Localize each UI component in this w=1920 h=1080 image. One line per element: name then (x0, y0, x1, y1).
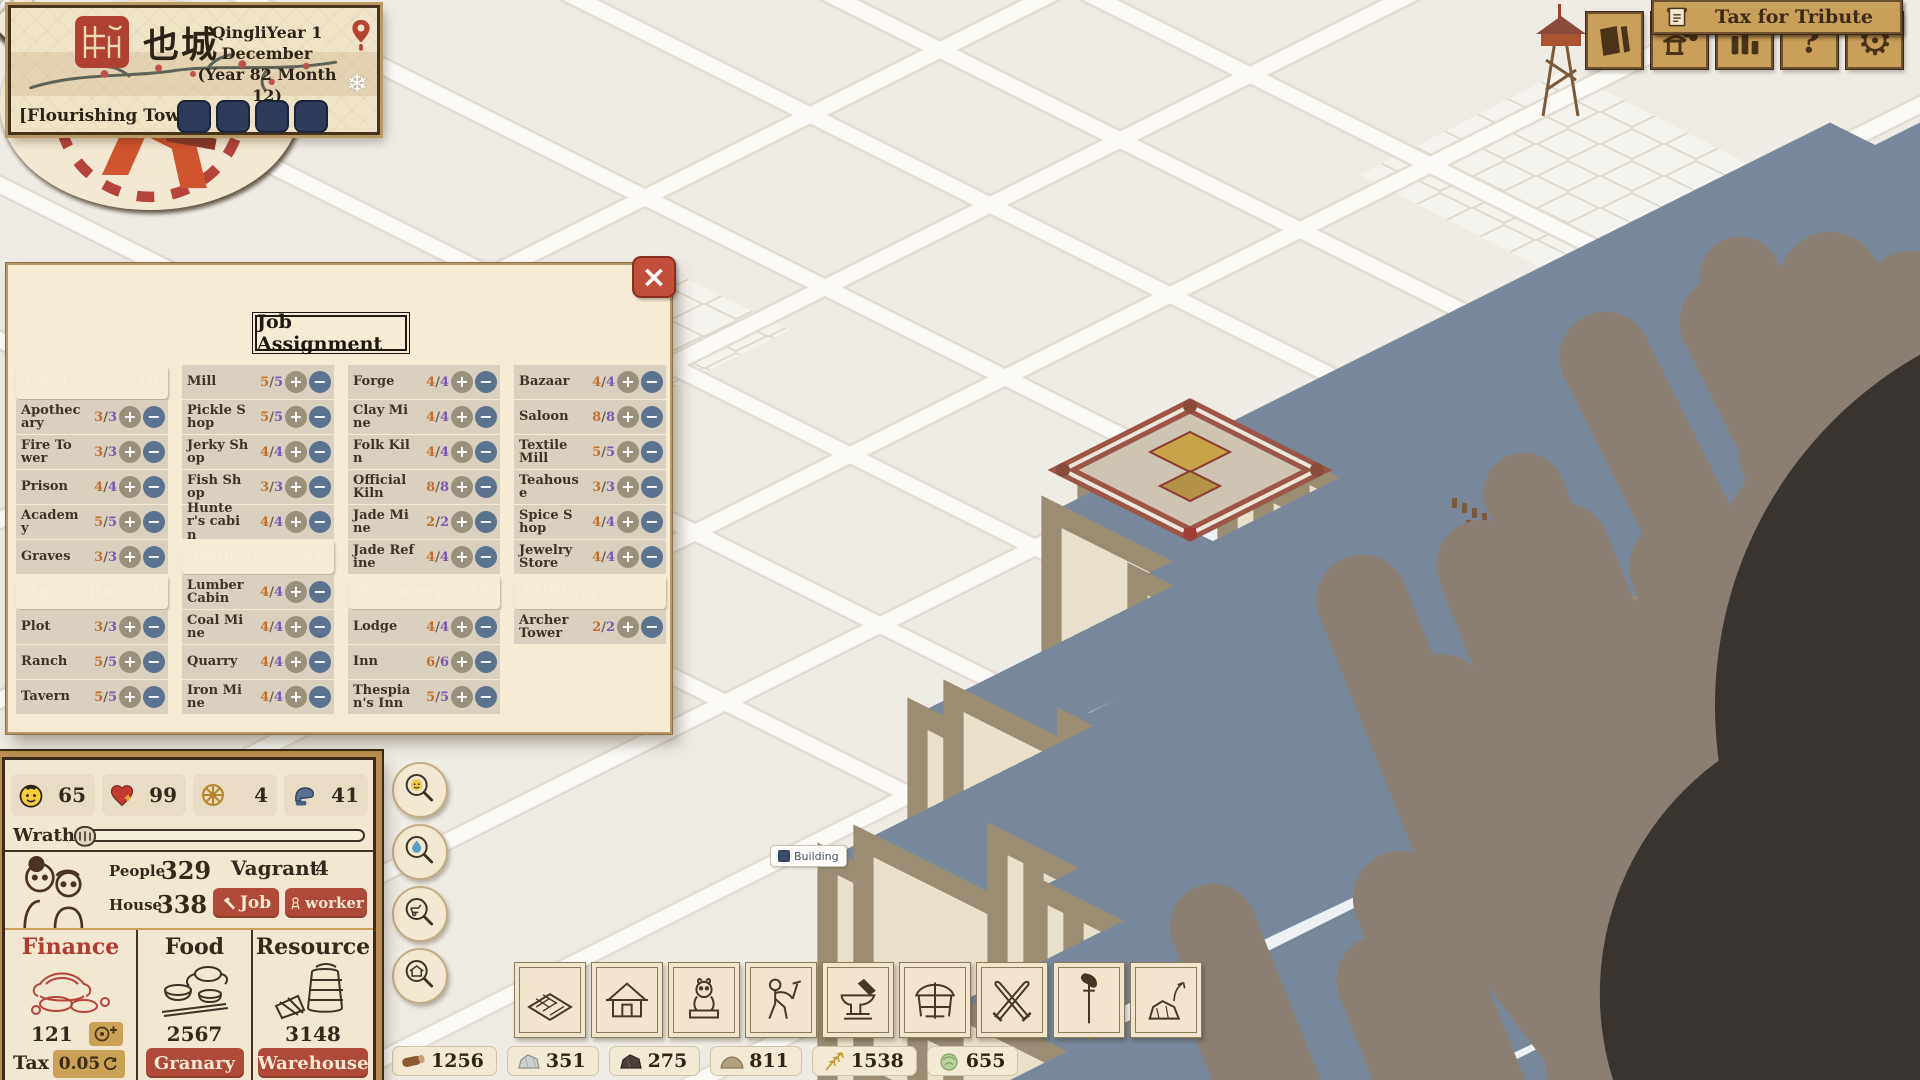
overlay-tool-button[interactable] (392, 824, 448, 880)
job-row: Iron Mine 4/4 + − (182, 680, 334, 714)
job-row: Pickle Shop 5/5 + − (182, 400, 334, 434)
resource-value: 1538 (851, 1050, 904, 1072)
remove-worker-button[interactable]: − (309, 511, 331, 533)
vagrant-label: Vagrant (231, 856, 319, 880)
speed-button[interactable] (294, 100, 328, 133)
job-name: Jerky Shop (187, 439, 248, 466)
resource-chip: 1538 (812, 1046, 917, 1076)
remove-worker-button[interactable]: − (641, 441, 663, 463)
remove-worker-button[interactable]: − (641, 546, 663, 568)
job-row: Thespian's Inn 5/5 + − (348, 680, 500, 714)
build-icon (599, 972, 655, 1028)
job-count: 6/6 (416, 655, 449, 670)
speed-controls (177, 100, 328, 133)
job-name: Saloon (519, 410, 580, 423)
town-info-panel: 也城 QingliYear 1 December (Year 82 Month … (8, 5, 380, 135)
remove-worker-button[interactable]: − (143, 406, 165, 428)
stat-chips: 65 99 4 41 (11, 774, 368, 816)
job-name: Lumber Cabin (187, 579, 248, 606)
remove-worker-button[interactable]: − (641, 406, 663, 428)
coin-add-button[interactable] (89, 1022, 123, 1046)
menu-button[interactable] (1586, 12, 1643, 69)
job-category-header: Agriculture59 (16, 575, 168, 609)
granary-button[interactable]: Granary (146, 1048, 244, 1078)
overlay-tools (392, 762, 448, 1004)
remove-worker-button[interactable]: − (641, 511, 663, 533)
job-category-header: Industry41 (182, 540, 334, 574)
overlay-tool-icon (400, 770, 440, 810)
job-name: Mill (187, 375, 248, 388)
job-name: Quarry (187, 655, 248, 668)
build-slot[interactable] (668, 962, 740, 1038)
job-count: 2/2 (582, 620, 615, 635)
job-count: 4/4 (582, 515, 615, 530)
resource-icon (719, 1051, 745, 1071)
job-name: Folk Kiln (353, 439, 414, 466)
remove-worker-button[interactable]: − (475, 686, 497, 708)
map-tooltip: Building (770, 845, 847, 867)
food-sketch (149, 962, 241, 1020)
add-worker-button[interactable]: + (451, 371, 473, 393)
add-worker-button[interactable]: + (119, 686, 141, 708)
job-count: 4/4 (416, 410, 449, 425)
job-name: Iron Mine (187, 684, 248, 711)
job-count: 4/4 (250, 515, 283, 530)
coin-plus-icon (93, 1024, 119, 1044)
job-name: Clay Mine (353, 404, 414, 431)
remove-worker-button[interactable]: − (475, 511, 497, 533)
overlay-tool-icon (400, 832, 440, 872)
remove-worker-button[interactable]: − (475, 476, 497, 498)
banner-button[interactable]: Tax for Tribute (1652, 0, 1902, 34)
resource-value: 811 (749, 1050, 789, 1072)
wrath-label: Wrath (13, 825, 75, 846)
job-column-3: Forge 4/4 + − Clay Mine 4/4 + − Folk Kil… (348, 365, 500, 714)
remove-worker-button[interactable]: − (475, 441, 497, 463)
resource-value: 3148 (285, 1022, 341, 1046)
job-row: Lumber Cabin 4/4 + − (182, 575, 334, 609)
job-row: Coal Mine 4/4 + − (182, 610, 334, 644)
category-label: Military (523, 582, 599, 602)
category-count: 41 (301, 547, 325, 567)
date-display: QingliYear 1 December (Year 82 Month 12) (181, 22, 353, 106)
job-count: 4/4 (250, 655, 283, 670)
stat-value: 41 (331, 783, 359, 807)
remove-worker-button[interactable]: − (309, 406, 331, 428)
add-worker-button[interactable]: + (617, 406, 639, 428)
resource-icon (936, 1051, 962, 1071)
vagrant-value: 4 (315, 856, 329, 880)
job-row: Mill 5/5 + − (182, 365, 334, 399)
build-icon (522, 972, 578, 1028)
build-icon (1061, 972, 1117, 1028)
build-slot[interactable] (1053, 962, 1125, 1038)
job-row: Apothecary 3/3 + − (16, 400, 168, 434)
job-name: Fish Shop (187, 474, 248, 501)
job-column-1: Civil10 Apothecary 3/3 + − Fire Tower 3/… (16, 365, 168, 714)
job-assignment-panel: × Job Assignment Civil10 Apothecary 3/3 … (6, 263, 672, 734)
job-name: Coal Mine (187, 614, 248, 641)
job-count: 4/4 (250, 585, 283, 600)
banner-label: Tax for Tribute (1698, 6, 1890, 28)
job-row: Lodge 4/4 + − (348, 610, 500, 644)
finance-title: Finance (5, 934, 136, 960)
remove-worker-button[interactable]: − (309, 476, 331, 498)
job-row: Jade Mine 2/2 + − (348, 505, 500, 539)
job-count: 5/5 (84, 690, 117, 705)
population-section: People 329 House 338 Vagrant 4 Job worke… (5, 854, 373, 928)
job-row: Forge 4/4 + − (348, 365, 500, 399)
job-row: Spice Shop 4/4 + − (514, 505, 666, 539)
build-slot[interactable] (822, 962, 894, 1038)
banner-icon (1664, 4, 1690, 30)
add-worker-button[interactable]: + (617, 441, 639, 463)
category-count: 2 (645, 582, 657, 602)
job-count: 4/4 (84, 480, 117, 495)
add-worker-button[interactable]: + (617, 511, 639, 533)
add-worker-button[interactable]: + (119, 441, 141, 463)
stat-icon (108, 781, 136, 809)
add-worker-button[interactable]: + (119, 616, 141, 638)
stat-icon (17, 781, 45, 809)
add-worker-button[interactable]: + (285, 406, 307, 428)
job-count: 5/5 (84, 655, 117, 670)
job-name: Thespian's Inn (353, 684, 414, 711)
build-slot[interactable] (514, 962, 586, 1038)
map-pin-icon[interactable] (345, 18, 377, 54)
stat-chip[interactable]: 41 (284, 774, 368, 816)
hammer-icon (221, 895, 237, 911)
category-label: Economy (357, 582, 443, 602)
job-count: 5/5 (250, 410, 283, 425)
build-slot[interactable] (591, 962, 663, 1038)
remove-worker-button[interactable]: − (309, 441, 331, 463)
job-name: Bazaar (519, 375, 580, 388)
remove-worker-button[interactable]: − (475, 371, 497, 393)
category-label: Industry (191, 547, 272, 567)
resource-chip: 351 (507, 1046, 599, 1076)
job-count: 5/5 (416, 690, 449, 705)
job-row: Prison 4/4 + − (16, 470, 168, 504)
job-category-header: Military2 (514, 575, 666, 609)
house-label: House (109, 896, 162, 914)
add-worker-button[interactable]: + (451, 441, 473, 463)
add-worker-button[interactable]: + (617, 546, 639, 568)
job-row: Graves 3/3 + − (16, 540, 168, 574)
job-name: Forge (353, 375, 414, 388)
stat-icon (199, 781, 227, 809)
build-toolbar (514, 962, 1202, 1038)
job-row: Academy 5/5 + − (16, 505, 168, 539)
resource-title: Resource (253, 934, 373, 960)
resource-chip: 1256 (392, 1046, 497, 1076)
job-row: Fire Tower 3/3 + − (16, 435, 168, 469)
add-worker-button[interactable]: + (617, 476, 639, 498)
overlay-tool-button[interactable] (392, 762, 448, 818)
stat-value: 65 (58, 783, 86, 807)
add-worker-button[interactable]: + (285, 616, 307, 638)
overlay-tool-button[interactable] (392, 886, 448, 942)
tax-control[interactable]: 0.05 (53, 1050, 125, 1078)
job-name: Inn (353, 655, 414, 668)
job-row: Fish Shop 3/3 + − (182, 470, 334, 504)
house-value: 338 (157, 890, 207, 919)
people-value: 329 (161, 856, 211, 885)
speed-button[interactable] (216, 100, 250, 133)
job-count: 3/3 (84, 410, 117, 425)
remove-worker-button[interactable]: − (143, 511, 165, 533)
job-count: 4/4 (250, 445, 283, 460)
people-label: People (109, 862, 165, 880)
resource-value: 351 (546, 1050, 586, 1072)
remove-worker-button[interactable]: − (143, 546, 165, 568)
overlay-tool-button[interactable] (392, 948, 448, 1004)
build-slot[interactable] (1130, 962, 1202, 1038)
job-row: Official Kiln 8/8 + − (348, 470, 500, 504)
add-worker-button[interactable]: + (119, 406, 141, 428)
town-status: [Flourishing Town] (19, 106, 200, 126)
stat-icon (290, 781, 318, 809)
add-worker-button[interactable]: + (285, 651, 307, 673)
add-worker-button[interactable]: + (285, 511, 307, 533)
job-name: Spice Shop (519, 509, 580, 536)
job-row: Tavern 5/5 + − (16, 680, 168, 714)
panel-title: Job Assignment (255, 315, 407, 351)
job-count: 4/4 (250, 690, 283, 705)
add-worker-button[interactable]: + (451, 651, 473, 673)
finance-value: 121 (31, 1022, 73, 1046)
job-count: 4/4 (416, 375, 449, 390)
svg-text:❄: ❄ (347, 69, 368, 98)
job-name: Teahouse (519, 474, 580, 501)
remove-worker-button[interactable]: − (309, 371, 331, 393)
job-name: Textile Mill (519, 439, 580, 466)
add-worker-button[interactable]: + (451, 476, 473, 498)
resource-value: 275 (648, 1050, 688, 1072)
job-count: 5/5 (84, 515, 117, 530)
resource-sketch (267, 962, 359, 1020)
add-worker-button[interactable]: + (451, 511, 473, 533)
job-count: 8/8 (582, 410, 615, 425)
job-button[interactable]: Job (213, 888, 279, 918)
job-name: Pickle Shop (187, 404, 248, 431)
remove-worker-button[interactable]: − (641, 616, 663, 638)
job-row: Folk Kiln 4/4 + − (348, 435, 500, 469)
remove-worker-button[interactable]: − (309, 651, 331, 673)
add-worker-button[interactable]: + (451, 616, 473, 638)
stat-chip[interactable]: 65 (11, 774, 95, 816)
resource-chip: 275 (609, 1046, 701, 1076)
overlay-tool-icon (400, 956, 440, 996)
job-row: Archer Tower 2/2 + − (514, 610, 666, 644)
build-icon (830, 972, 886, 1028)
job-count: 3/3 (582, 480, 615, 495)
job-row: Jerky Shop 4/4 + − (182, 435, 334, 469)
add-worker-button[interactable]: + (119, 546, 141, 568)
job-name: Jade Mine (353, 509, 414, 536)
job-row: Jewelry Store 4/4 + − (514, 540, 666, 574)
job-name: Jade Refine (353, 544, 414, 571)
remove-worker-button[interactable]: − (143, 686, 165, 708)
add-worker-button[interactable]: + (451, 546, 473, 568)
resource-chip: 811 (710, 1046, 802, 1076)
remove-worker-button[interactable]: − (475, 546, 497, 568)
remove-worker-button[interactable]: − (641, 371, 663, 393)
job-name: Archer Tower (519, 614, 580, 641)
resource-icon (821, 1051, 847, 1071)
resource-bar: 1256 351 275 811 1538 655 (392, 1046, 1018, 1076)
remove-worker-button[interactable]: − (143, 616, 165, 638)
job-count: 3/3 (84, 445, 117, 460)
job-count: 4/4 (250, 620, 283, 635)
remove-worker-button[interactable]: − (309, 686, 331, 708)
job-count: 3/3 (84, 620, 117, 635)
job-count: 5/5 (582, 445, 615, 460)
job-name: Lodge (353, 620, 414, 633)
job-count: 4/4 (416, 550, 449, 565)
add-worker-button[interactable]: + (617, 371, 639, 393)
remove-worker-button[interactable]: − (309, 581, 331, 603)
job-count: 4/4 (582, 550, 615, 565)
remove-worker-button[interactable]: − (475, 651, 497, 673)
build-slot[interactable] (745, 962, 817, 1038)
overlay-tool-icon (400, 894, 440, 934)
job-row: Textile Mill 5/5 + − (514, 435, 666, 469)
remove-worker-button[interactable]: − (143, 476, 165, 498)
resource-chip: 655 (927, 1046, 1019, 1076)
snowflake-icon: ❄ (341, 68, 373, 98)
job-name: Jewelry Store (519, 544, 580, 571)
job-count: 3/3 (84, 550, 117, 565)
category-label: Agriculture (25, 582, 135, 602)
worker-icon (288, 896, 303, 911)
speed-button[interactable] (177, 100, 211, 133)
food-column: Food 2567 Granary (136, 930, 251, 1080)
add-worker-button[interactable]: + (119, 651, 141, 673)
job-count: 4/4 (582, 375, 615, 390)
resource-icon (401, 1051, 427, 1071)
add-worker-button[interactable]: + (285, 476, 307, 498)
tax-value: 0.05 (59, 1054, 100, 1074)
job-count: 4/4 (416, 620, 449, 635)
money-sketch (21, 962, 121, 1020)
refresh-icon (103, 1056, 119, 1072)
job-row: Saloon 8/8 + − (514, 400, 666, 434)
job-column-2: Mill 5/5 + − Pickle Shop 5/5 + − Jerky S… (182, 365, 334, 714)
job-count: 4/4 (416, 445, 449, 460)
finance-column: Finance 121 Tax 0.05 (5, 930, 136, 1080)
job-category-header: Economy46 (348, 575, 500, 609)
job-name: Hunter's cabin (187, 502, 248, 542)
job-column-4: Bazaar 4/4 + − Saloon 8/8 + − Textile Mi… (514, 365, 666, 714)
add-worker-button[interactable]: + (285, 371, 307, 393)
remove-worker-button[interactable]: − (475, 406, 497, 428)
category-count: 46 (467, 582, 491, 602)
category-count: 59 (135, 582, 159, 602)
build-icon (676, 972, 732, 1028)
remove-worker-button[interactable]: − (143, 441, 165, 463)
job-row: Ranch 5/5 + − (16, 645, 168, 679)
add-worker-button[interactable]: + (285, 581, 307, 603)
remove-worker-button[interactable]: − (475, 616, 497, 638)
food-value: 2567 (167, 1022, 223, 1046)
build-icon (907, 972, 963, 1028)
job-name: Ranch (21, 655, 82, 668)
building-mini-icon (778, 850, 790, 862)
job-name: Prison (21, 480, 82, 493)
tax-label: Tax (13, 1052, 49, 1074)
build-slot[interactable] (899, 962, 971, 1038)
job-row: Plot 3/3 + − (16, 610, 168, 644)
economy-section: Finance 121 Tax 0.05 Food (5, 930, 373, 1080)
worker-button[interactable]: worker (285, 888, 367, 918)
category-count: 10 (135, 372, 159, 392)
stat-value: 4 (254, 783, 268, 807)
add-worker-button[interactable]: + (451, 406, 473, 428)
build-icon (753, 972, 809, 1028)
couple-illustration (9, 854, 101, 928)
wrath-meter: Wrath (13, 820, 365, 850)
add-worker-button[interactable]: + (119, 511, 141, 533)
job-count: 3/3 (250, 480, 283, 495)
add-worker-button[interactable]: + (285, 686, 307, 708)
job-count: 2/2 (416, 515, 449, 530)
job-count: 5/5 (250, 375, 283, 390)
warehouse-button[interactable]: Warehouse (258, 1048, 368, 1078)
fist-marker (69, 820, 101, 850)
job-row: Quarry 4/4 + − (182, 645, 334, 679)
stat-chip[interactable]: 4 (193, 774, 277, 816)
add-worker-button[interactable]: + (119, 476, 141, 498)
town-stats-panel: 65 99 4 41 Wrath People 329 Hou (2, 757, 376, 1080)
job-row: Teahouse 3/3 + − (514, 470, 666, 504)
job-name: Plot (21, 620, 82, 633)
build-icon (984, 972, 1040, 1028)
close-button[interactable]: × (632, 256, 676, 298)
resource-value: 655 (966, 1050, 1006, 1072)
add-worker-button[interactable]: + (285, 441, 307, 463)
job-name: Graves (21, 550, 82, 563)
job-category-header: Civil10 (16, 365, 168, 399)
job-row: Jade Refine 4/4 + − (348, 540, 500, 574)
town-seal-icon (73, 14, 131, 70)
stat-chip[interactable]: 99 (102, 774, 186, 816)
menu-icon (1595, 21, 1635, 61)
job-name: Apothecary (21, 404, 82, 431)
job-name: Official Kiln (353, 474, 414, 501)
remove-worker-button[interactable]: − (641, 476, 663, 498)
job-row: Bazaar 4/4 + − (514, 365, 666, 399)
resource-column: Resource 3148 Warehouse (251, 930, 373, 1080)
add-worker-button[interactable]: + (451, 686, 473, 708)
remove-worker-button[interactable]: − (309, 616, 331, 638)
job-row: Hunter's cabin 4/4 + − (182, 505, 334, 539)
job-row: Inn 6/6 + − (348, 645, 500, 679)
food-title: Food (138, 934, 251, 960)
speed-button[interactable] (255, 100, 289, 133)
remove-worker-button[interactable]: − (143, 651, 165, 673)
job-count: 8/8 (416, 480, 449, 495)
job-name: Tavern (21, 690, 82, 703)
build-slot[interactable] (976, 962, 1048, 1038)
add-worker-button[interactable]: + (617, 616, 639, 638)
wrath-bar[interactable] (83, 829, 365, 842)
resource-icon (618, 1051, 644, 1071)
map-tooltip-label: Building (794, 850, 839, 863)
build-icon (1138, 972, 1194, 1028)
resource-icon (516, 1051, 542, 1071)
resource-value: 1256 (431, 1050, 484, 1072)
